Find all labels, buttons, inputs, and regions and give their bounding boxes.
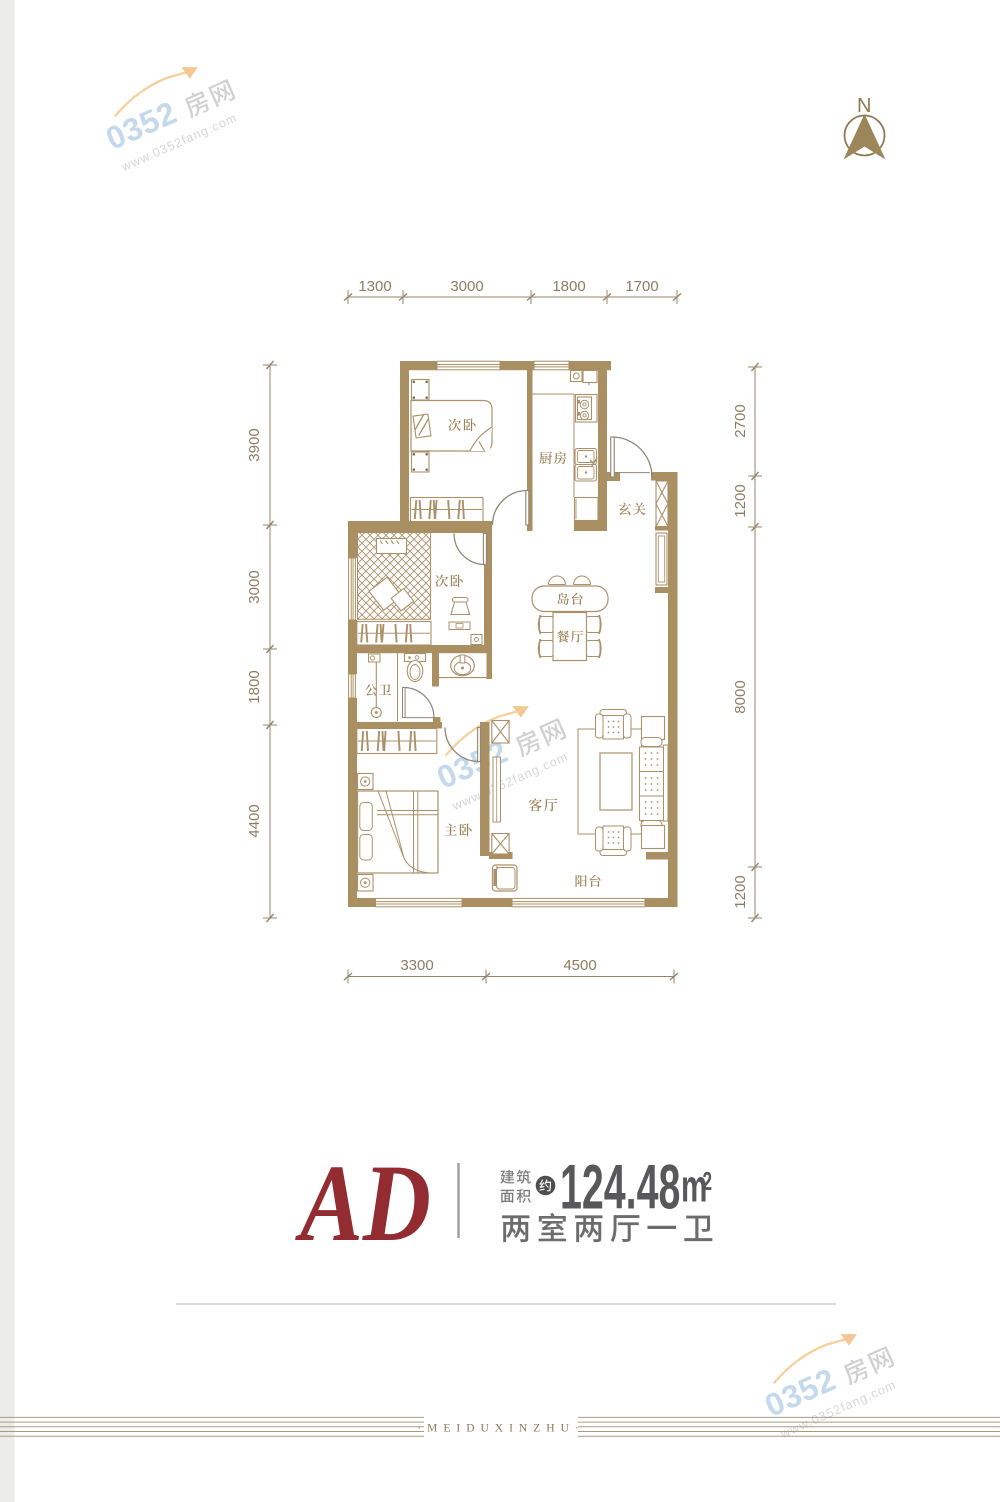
svg-text:3300: 3300 <box>400 957 433 974</box>
svg-text:1200: 1200 <box>732 875 749 908</box>
svg-text:2700: 2700 <box>732 404 749 437</box>
svg-text:4400: 4400 <box>246 804 263 837</box>
svg-text:1800: 1800 <box>246 670 263 703</box>
svg-text:124.48: 124.48 <box>560 1152 680 1223</box>
svg-text:3000: 3000 <box>246 570 263 603</box>
svg-text:4500: 4500 <box>563 957 596 974</box>
svg-text:1700: 1700 <box>625 278 658 295</box>
svg-text:N: N <box>857 95 871 117</box>
svg-text:AD: AD <box>295 1142 431 1264</box>
svg-text:1800: 1800 <box>552 278 585 295</box>
svg-text:3000: 3000 <box>450 278 483 295</box>
svg-text:2: 2 <box>703 1166 713 1196</box>
svg-text:1200: 1200 <box>732 484 749 517</box>
svg-text:1300: 1300 <box>358 278 391 295</box>
svg-text:·MEIDUXINZHU·: ·MEIDUXINZHU· <box>417 1423 584 1435</box>
svg-text:8000: 8000 <box>732 680 749 713</box>
svg-text:3900: 3900 <box>246 428 263 461</box>
